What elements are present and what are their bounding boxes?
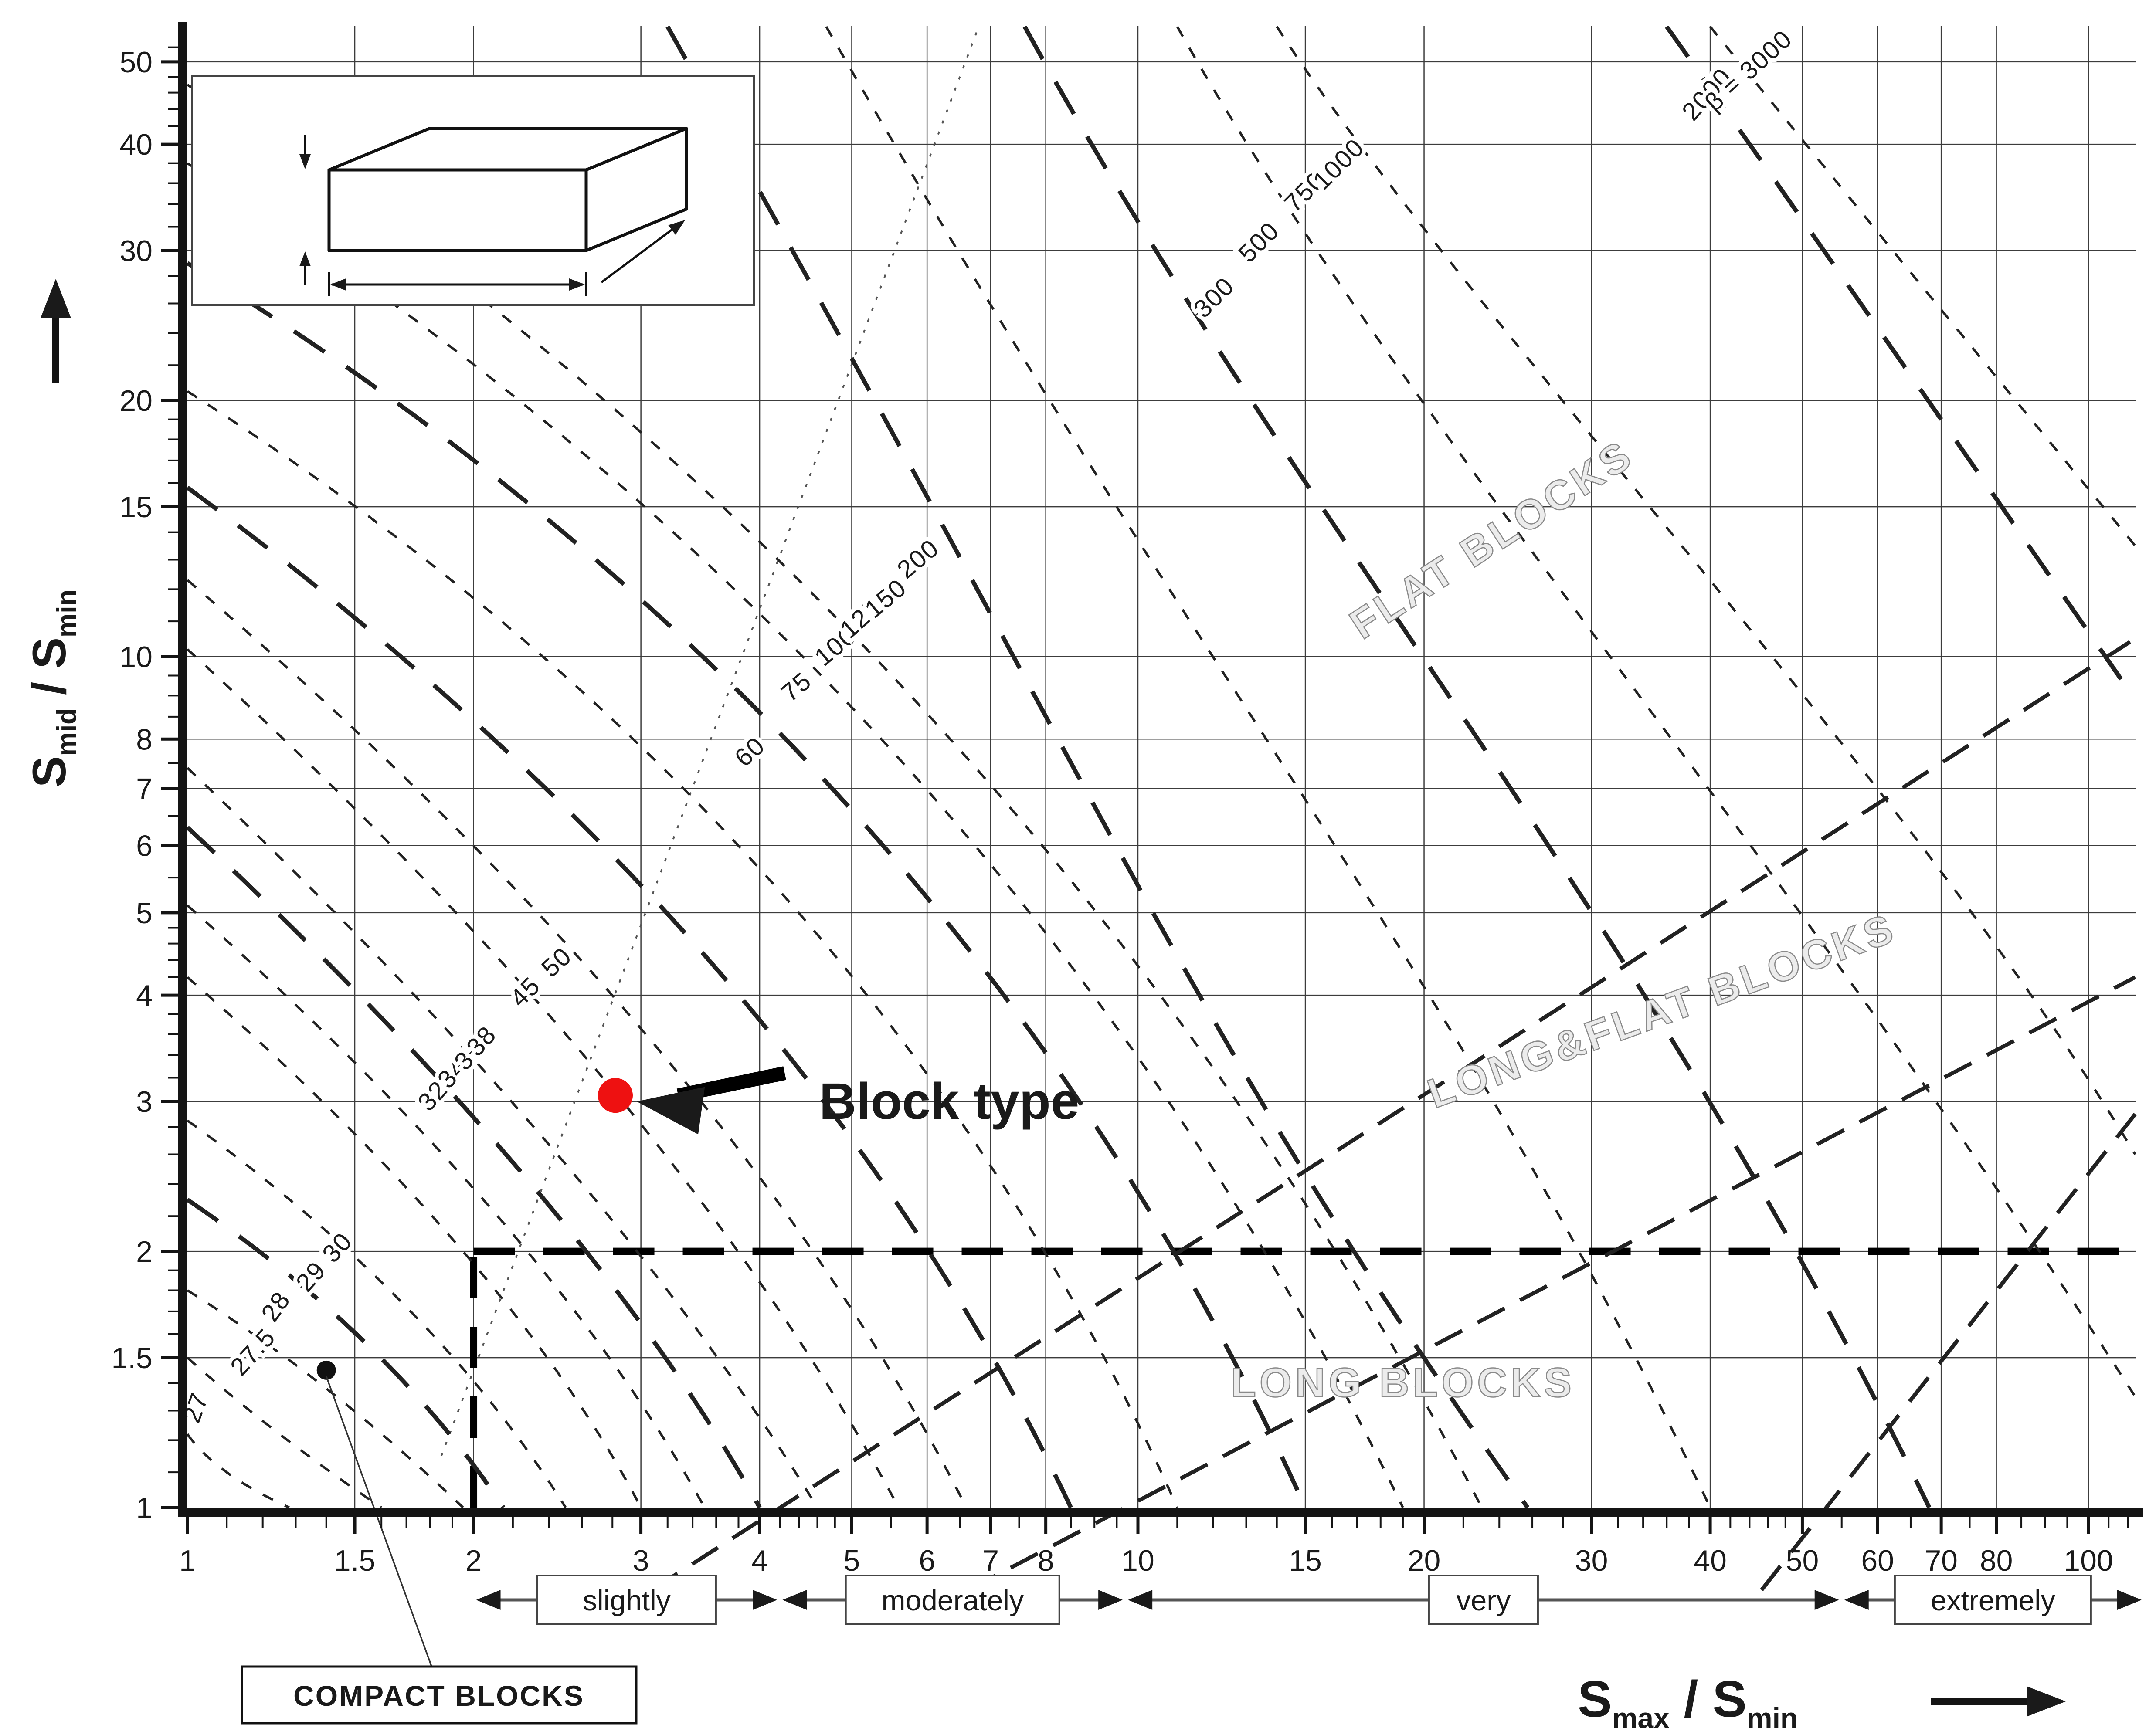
x-axis-title-sep: / — [1670, 1670, 1712, 1728]
scale-band-label-very: very — [1457, 1584, 1511, 1616]
chart-canvas: FLAT BLOCKSLONG&FLAT BLOCKSLONG BLOCKS27… — [0, 0, 2156, 1728]
scale-band-label-extremely: extremely — [1931, 1584, 2055, 1616]
tick-label-x-5: 5 — [844, 1544, 860, 1577]
tick-label-y-20: 20 — [119, 384, 153, 417]
x-axis-spine — [178, 1508, 2143, 1517]
scale-band-label-moderately: moderately — [881, 1584, 1024, 1616]
tick-label-y-3: 3 — [136, 1085, 153, 1118]
tick-label-y-1.5: 1.5 — [111, 1342, 153, 1375]
tick-label-x-70: 70 — [1925, 1544, 1958, 1577]
region-label-long-blocks: LONG BLOCKS — [1231, 1359, 1575, 1406]
x-axis-title-sub2: min — [1747, 1702, 1798, 1728]
tick-label-x-8: 8 — [1038, 1544, 1054, 1577]
y-axis-title-sub1: mid — [52, 708, 82, 756]
tick-label-y-8: 8 — [136, 723, 153, 756]
tick-label-x-30: 30 — [1575, 1544, 1608, 1577]
scale-band-label-slightly: slightly — [583, 1584, 671, 1616]
tick-label-y-1: 1 — [136, 1491, 153, 1525]
tick-label-x-4: 4 — [751, 1544, 768, 1577]
tick-label-y-30: 30 — [119, 234, 153, 268]
y-axis-title-s2: S — [23, 637, 75, 669]
y-axis-title-sub2: min — [52, 590, 82, 637]
x-axis-title-s2: S — [1712, 1670, 1747, 1728]
tick-label-x-40: 40 — [1694, 1544, 1727, 1577]
tick-label-x-20: 20 — [1408, 1544, 1441, 1577]
tick-label-x-7: 7 — [982, 1544, 999, 1577]
y-axis-title-s1: S — [23, 756, 75, 787]
tick-label-x-80: 80 — [1980, 1544, 2013, 1577]
tick-label-y-7: 7 — [136, 773, 153, 806]
tick-label-x-1: 1 — [179, 1544, 196, 1577]
tick-label-y-40: 40 — [119, 128, 153, 161]
y-axis-spine — [178, 22, 187, 1517]
beta-block-shape-diagram: FLAT BLOCKSLONG&FLAT BLOCKSLONG BLOCKS27… — [0, 0, 2156, 1728]
tick-label-y-10: 10 — [119, 640, 153, 674]
y-axis-title-sep: / — [23, 669, 75, 708]
tick-label-x-2: 2 — [465, 1544, 482, 1577]
tick-label-x-1.5: 1.5 — [334, 1544, 376, 1577]
tick-label-y-4: 4 — [136, 979, 153, 1012]
tick-label-x-10: 10 — [1121, 1544, 1154, 1577]
tick-label-x-100: 100 — [2064, 1544, 2113, 1577]
block-front-face — [329, 170, 586, 251]
tick-label-y-15: 15 — [119, 491, 153, 524]
tick-label-x-60: 60 — [1861, 1544, 1894, 1577]
compact-blocks-label: COMPACT BLOCKS — [293, 1680, 584, 1712]
tick-label-y-5: 5 — [136, 897, 153, 930]
tick-label-x-50: 50 — [1786, 1544, 1819, 1577]
tick-label-x-3: 3 — [633, 1544, 649, 1577]
block-type-label: Block type — [819, 1073, 1080, 1130]
x-axis-title-s1: S — [1578, 1670, 1612, 1728]
tick-label-x-15: 15 — [1289, 1544, 1322, 1577]
tick-label-x-6: 6 — [919, 1544, 935, 1577]
block-type-point — [598, 1078, 633, 1113]
tick-label-y-2: 2 — [136, 1235, 153, 1268]
tick-label-y-50: 50 — [119, 46, 153, 79]
tick-label-y-6: 6 — [136, 829, 153, 862]
x-axis-title-sub1: max — [1612, 1702, 1670, 1728]
